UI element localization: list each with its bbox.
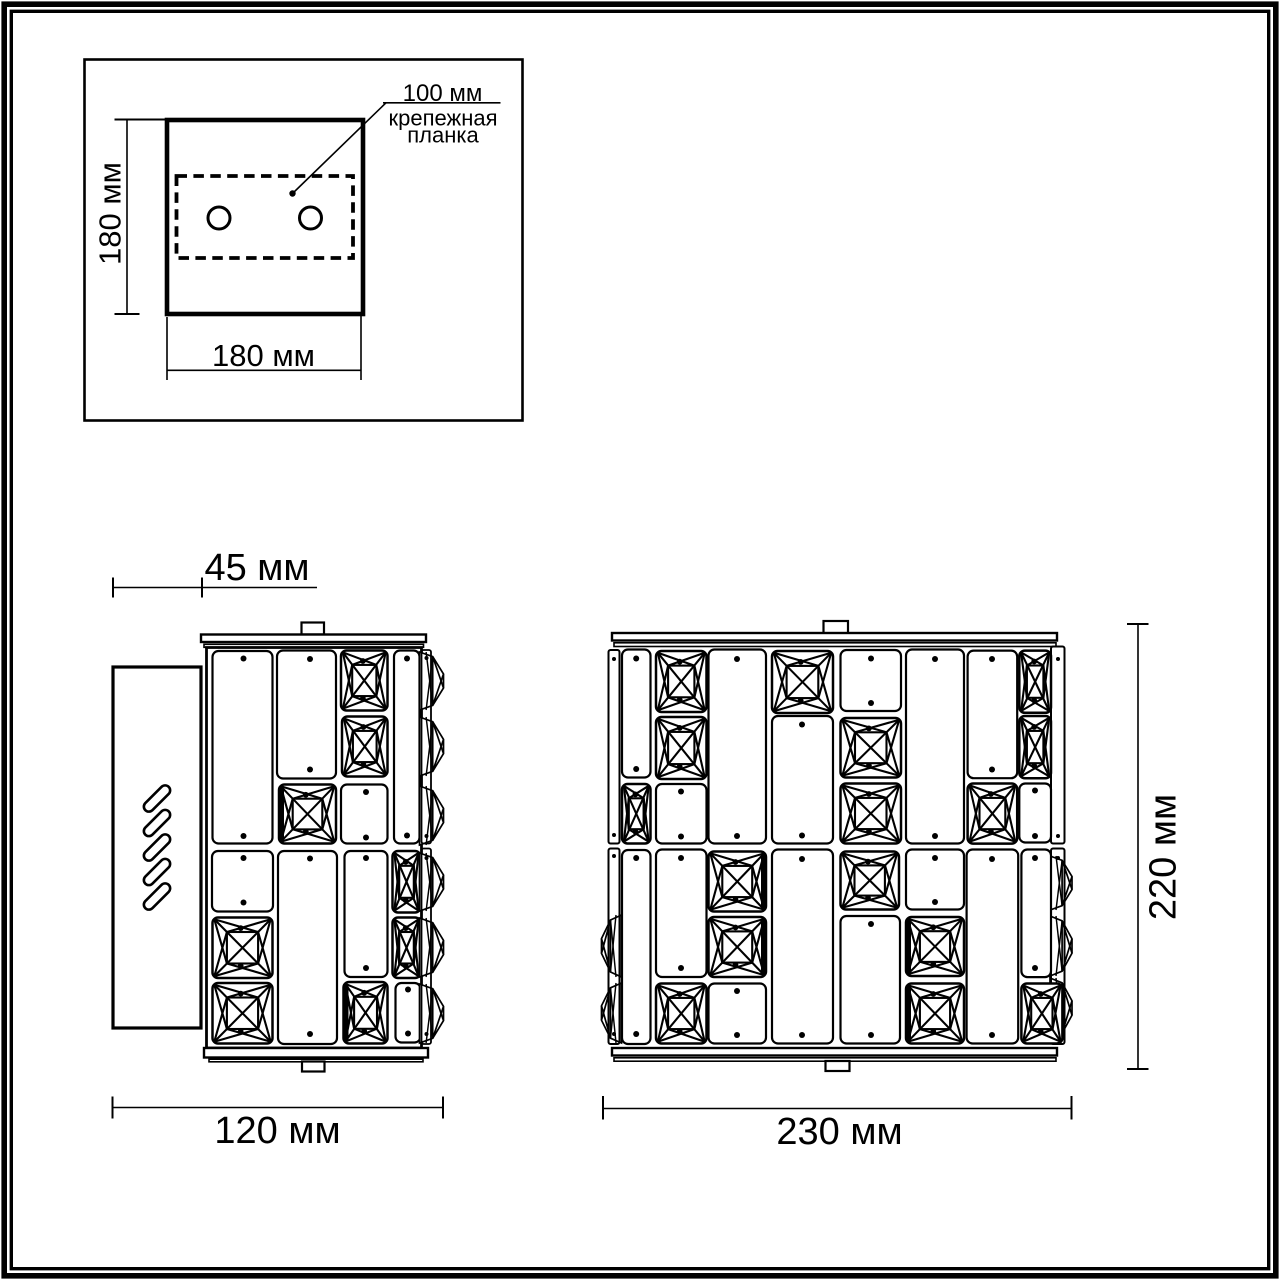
svg-text:100 мм: 100 мм	[403, 80, 483, 107]
svg-text:180 мм: 180 мм	[212, 338, 315, 373]
svg-text:120 мм: 120 мм	[214, 1110, 340, 1152]
svg-text:180 мм: 180 мм	[93, 162, 128, 265]
svg-text:220 мм: 220 мм	[1143, 794, 1185, 920]
svg-text:45 мм: 45 мм	[204, 547, 309, 589]
svg-text:230 мм: 230 мм	[776, 1111, 902, 1153]
svg-text:планка: планка	[407, 123, 479, 148]
